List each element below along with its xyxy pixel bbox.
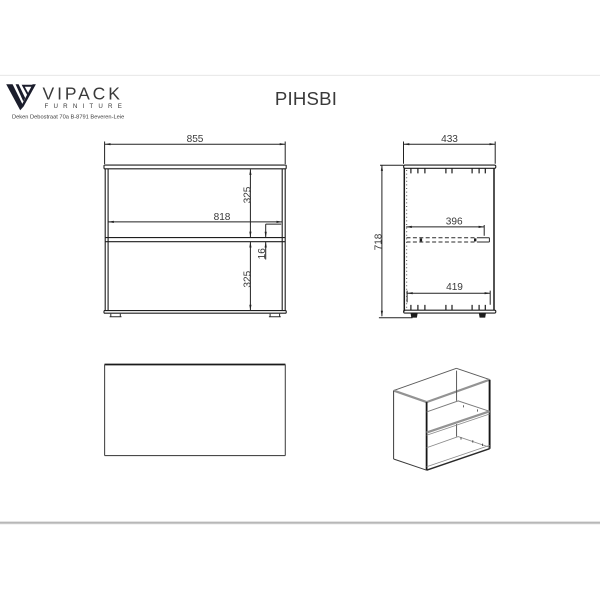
svg-text:855: 855 <box>187 134 204 145</box>
svg-text:16: 16 <box>257 248 268 260</box>
svg-text:433: 433 <box>441 134 458 145</box>
svg-text:VIPACK: VIPACK <box>43 84 123 104</box>
svg-text:818: 818 <box>214 212 231 223</box>
svg-text:396: 396 <box>446 217 463 228</box>
svg-text:FURNITURE: FURNITURE <box>45 103 128 110</box>
svg-text:Deken Debostraat 70a B-8791 Be: Deken Debostraat 70a B-8791 Beveren-Leie <box>12 115 124 121</box>
svg-text:PIHSBI: PIHSBI <box>275 88 337 109</box>
svg-text:325: 325 <box>243 270 254 287</box>
svg-text:325: 325 <box>243 186 254 203</box>
svg-text:718: 718 <box>373 233 384 250</box>
svg-text:419: 419 <box>446 282 463 293</box>
